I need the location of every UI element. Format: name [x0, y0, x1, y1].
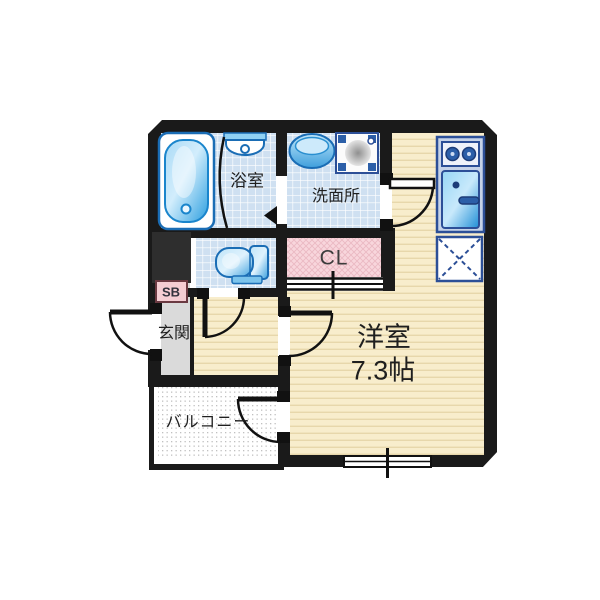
washroom-opening: [380, 184, 392, 220]
bathroom-label: 浴室: [230, 173, 264, 190]
bathroom-opening: [276, 176, 287, 224]
kitchen-sink-icon: [442, 171, 479, 228]
wall-closet-right: [381, 238, 395, 291]
washer-pan-icon: [336, 133, 378, 173]
wall-right: [484, 120, 497, 467]
shoebox-label: SB: [162, 286, 180, 299]
wall-closet-top: [276, 228, 395, 238]
closet-label: CL: [320, 248, 349, 269]
balcony-rail-left: [149, 381, 154, 470]
balcony-label: バルコニー: [166, 415, 251, 431]
wall-top: [148, 120, 497, 133]
vanity-sink-icon: [290, 134, 335, 168]
mainroom-size-label: 7.3帖: [351, 358, 416, 385]
wall-entrance-step: [190, 297, 194, 375]
mainroom-label: 洋室: [357, 325, 411, 352]
entrance-label: 玄関: [158, 326, 190, 342]
washroom-label: 洗面所: [312, 189, 360, 205]
kitchen-unit-icon: [437, 137, 484, 232]
mainroom-opening: [278, 316, 290, 356]
floor-plan: 浴室 洗面所 CL SB 玄関 バルコニー 洋室 7.3帖: [0, 0, 600, 600]
pipe-space-block: [152, 232, 191, 283]
kitchen-stove-icon: [442, 142, 479, 166]
bathtub-icon: [159, 133, 214, 229]
bath-basin-icon: [224, 133, 266, 155]
refrigerator-space-icon: [437, 237, 482, 281]
wall-hall-bottom: [148, 375, 290, 387]
balcony-rail-bottom: [149, 464, 284, 470]
balcony-opening: [278, 401, 290, 433]
floor-plan-drawing: [0, 0, 600, 600]
